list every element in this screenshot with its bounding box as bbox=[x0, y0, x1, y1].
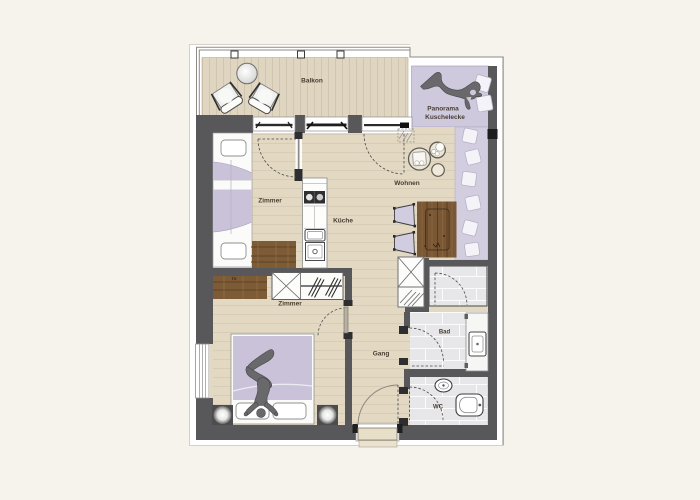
svg-text:Gang: Gang bbox=[373, 351, 390, 358]
svg-text:Kuschelecke: Kuschelecke bbox=[425, 114, 465, 121]
svg-text:Balkon: Balkon bbox=[301, 78, 323, 85]
svg-text:Zimmer: Zimmer bbox=[278, 301, 302, 308]
svg-text:Zimmer: Zimmer bbox=[258, 198, 282, 205]
svg-text:TV: TV bbox=[231, 276, 236, 281]
svg-text:Panorama: Panorama bbox=[427, 106, 459, 113]
svg-text:Küche: Küche bbox=[333, 218, 353, 225]
svg-text:Bad: Bad bbox=[439, 330, 451, 336]
svg-text:WC: WC bbox=[433, 405, 444, 411]
svg-text:Wohnen: Wohnen bbox=[394, 180, 420, 187]
